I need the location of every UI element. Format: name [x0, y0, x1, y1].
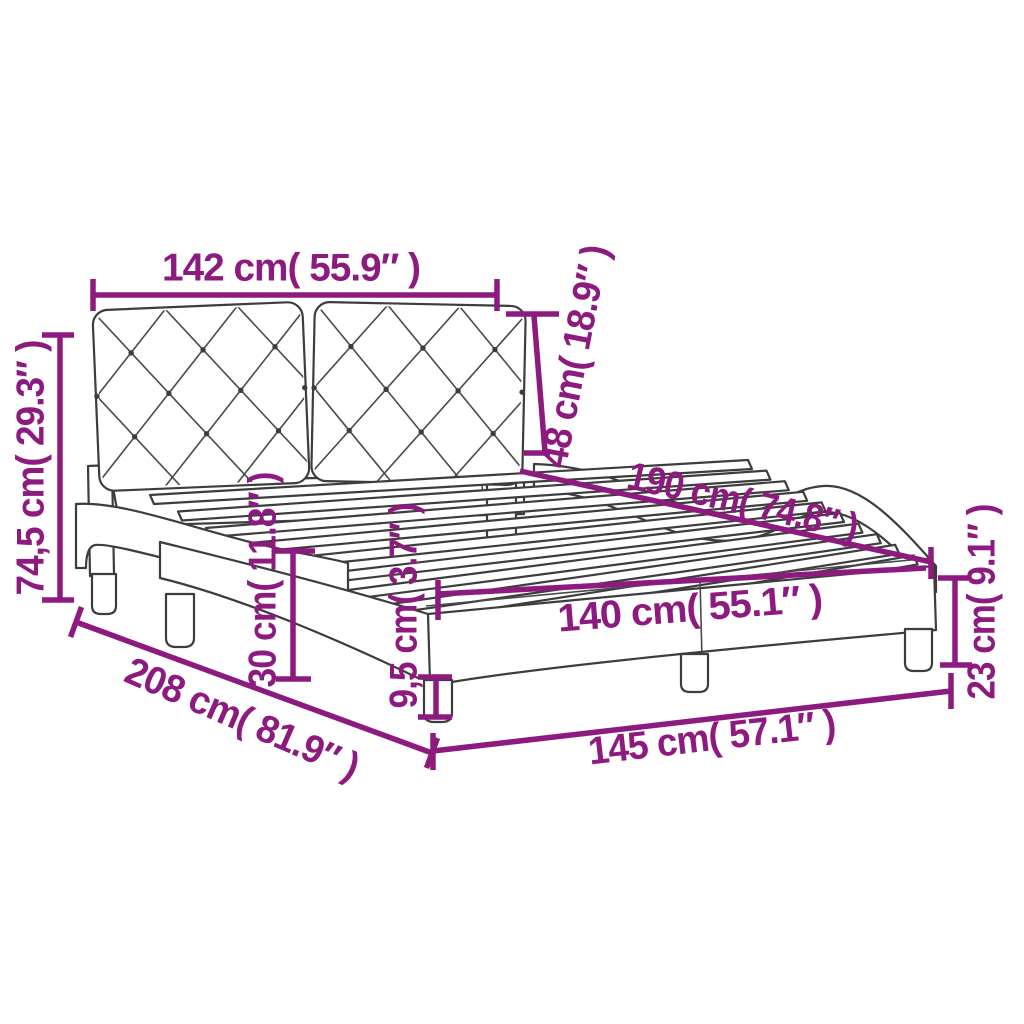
- foot-right-leg: [905, 629, 932, 671]
- middle-leg: [681, 654, 708, 692]
- dim-label-headboard-height: 48 cm( 18.9″ ): [532, 242, 617, 471]
- cushion-left-outline: [92, 302, 309, 492]
- dim-label-base-height: 23 cm( 9.1″ ): [960, 504, 1003, 699]
- dim-label-rail-height: 30 cm( 11.8″ ): [241, 472, 284, 687]
- dim-label-frame-width: 145 cm( 57.1″ ): [586, 702, 837, 773]
- bed-frame-diagram: 142 cm( 55.9″ ) 48 cm( 18.9″ ) 74,5 cm( …: [0, 0, 1024, 1024]
- dim-label-front-leg-height: 9,5 cm( 3.7″ ): [382, 503, 425, 708]
- headboard-left-leg: [92, 574, 116, 614]
- dimension-diagram: 142 cm( 55.9″ ) 48 cm( 18.9″ ) 74,5 cm( …: [0, 0, 1024, 1024]
- front-head-leg: [166, 594, 194, 647]
- cushion-right-outline: [311, 302, 526, 485]
- dim-label-total-height: 74,5 cm( 29.3″ ): [9, 340, 52, 595]
- dim-label-headboard-width: 142 cm( 55.9″ ): [162, 246, 420, 289]
